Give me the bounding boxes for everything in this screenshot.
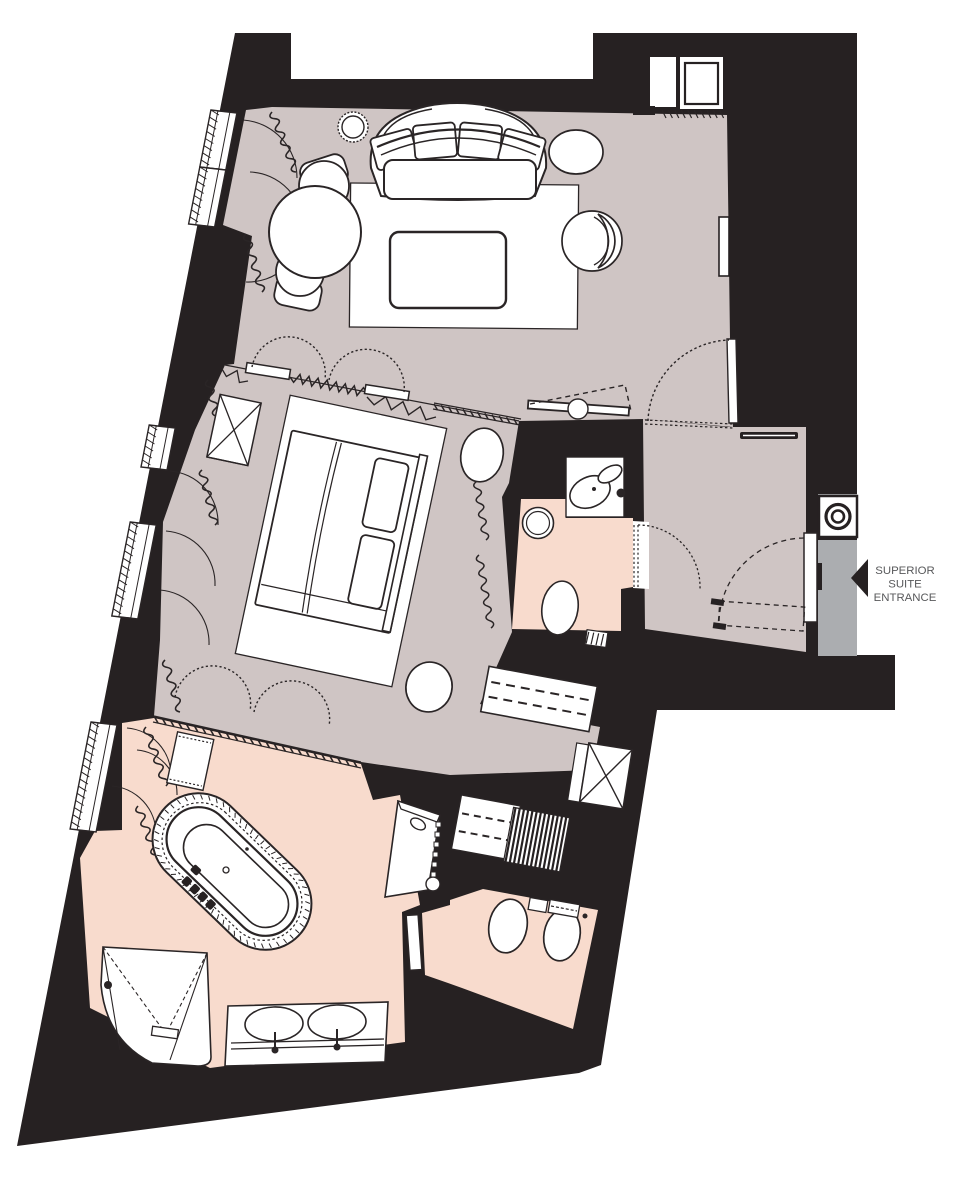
svg-text:SUITE: SUITE xyxy=(888,579,922,591)
svg-text:SUPERIOR: SUPERIOR xyxy=(875,565,935,577)
svg-text:ENTRANCE: ENTRANCE xyxy=(874,592,937,604)
